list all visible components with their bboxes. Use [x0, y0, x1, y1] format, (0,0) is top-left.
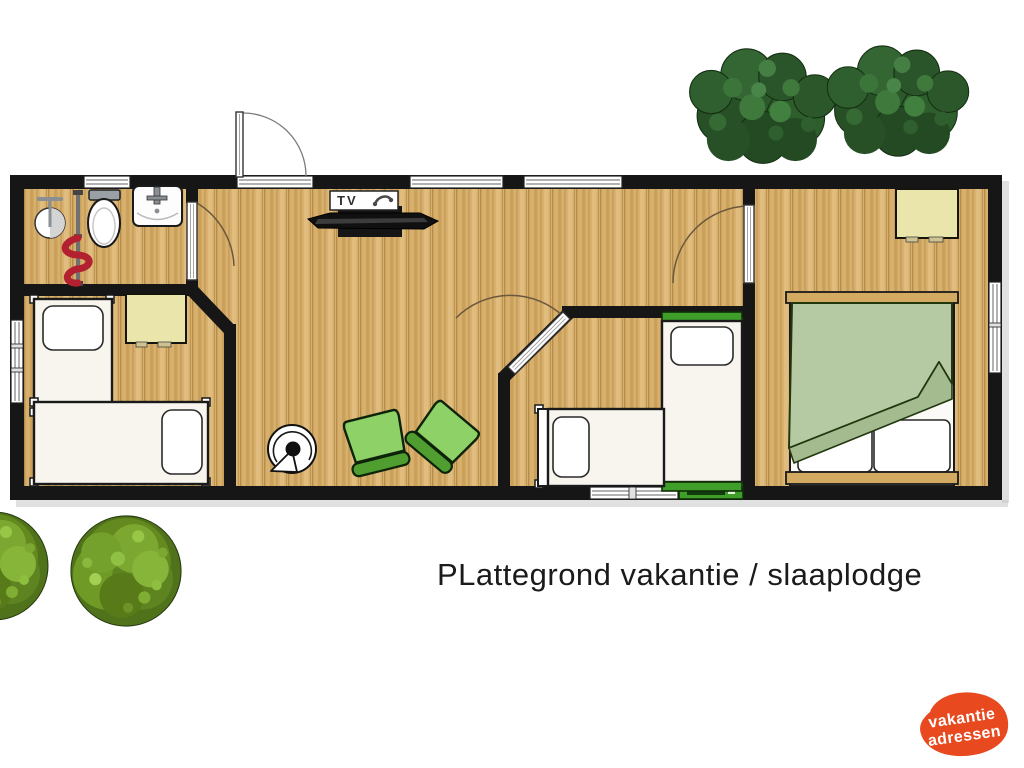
tv-label: TV — [337, 193, 358, 208]
single-bed-left-vertical — [30, 295, 114, 416]
wood-stove-icon — [268, 425, 316, 473]
single-bed-left-horizontal — [30, 398, 210, 486]
side-table-right — [896, 189, 958, 242]
window-top-living-2 — [524, 176, 622, 188]
floorplan-page: TV — [0, 0, 1024, 768]
single-bed-middle-horizontal — [535, 405, 664, 488]
plan-shadow-right — [1002, 181, 1009, 503]
window-right-bedroom — [989, 282, 1001, 373]
single-bed-middle-vertical — [662, 312, 742, 491]
floorplan-drawing: TV — [0, 0, 1024, 768]
vakantieadressen-logo: vakantie adressen — [920, 692, 1008, 756]
sink-icon — [133, 186, 182, 226]
window-left-bedroom — [11, 320, 23, 403]
tree-icon — [827, 46, 968, 156]
window-top-living-1 — [410, 176, 503, 188]
entrance-door — [236, 112, 313, 188]
side-table-left — [126, 294, 186, 347]
window-top-bathroom — [84, 176, 130, 188]
pillow — [874, 420, 950, 472]
toilet-icon — [88, 190, 120, 247]
plan-caption: PLattegrond vakantie / slaaplodge — [437, 557, 922, 593]
double-bed — [786, 292, 958, 486]
bush-icon — [0, 512, 48, 620]
tree-icon — [690, 49, 837, 163]
plan-shadow-bottom — [16, 500, 1008, 507]
bush-icon — [71, 516, 181, 626]
